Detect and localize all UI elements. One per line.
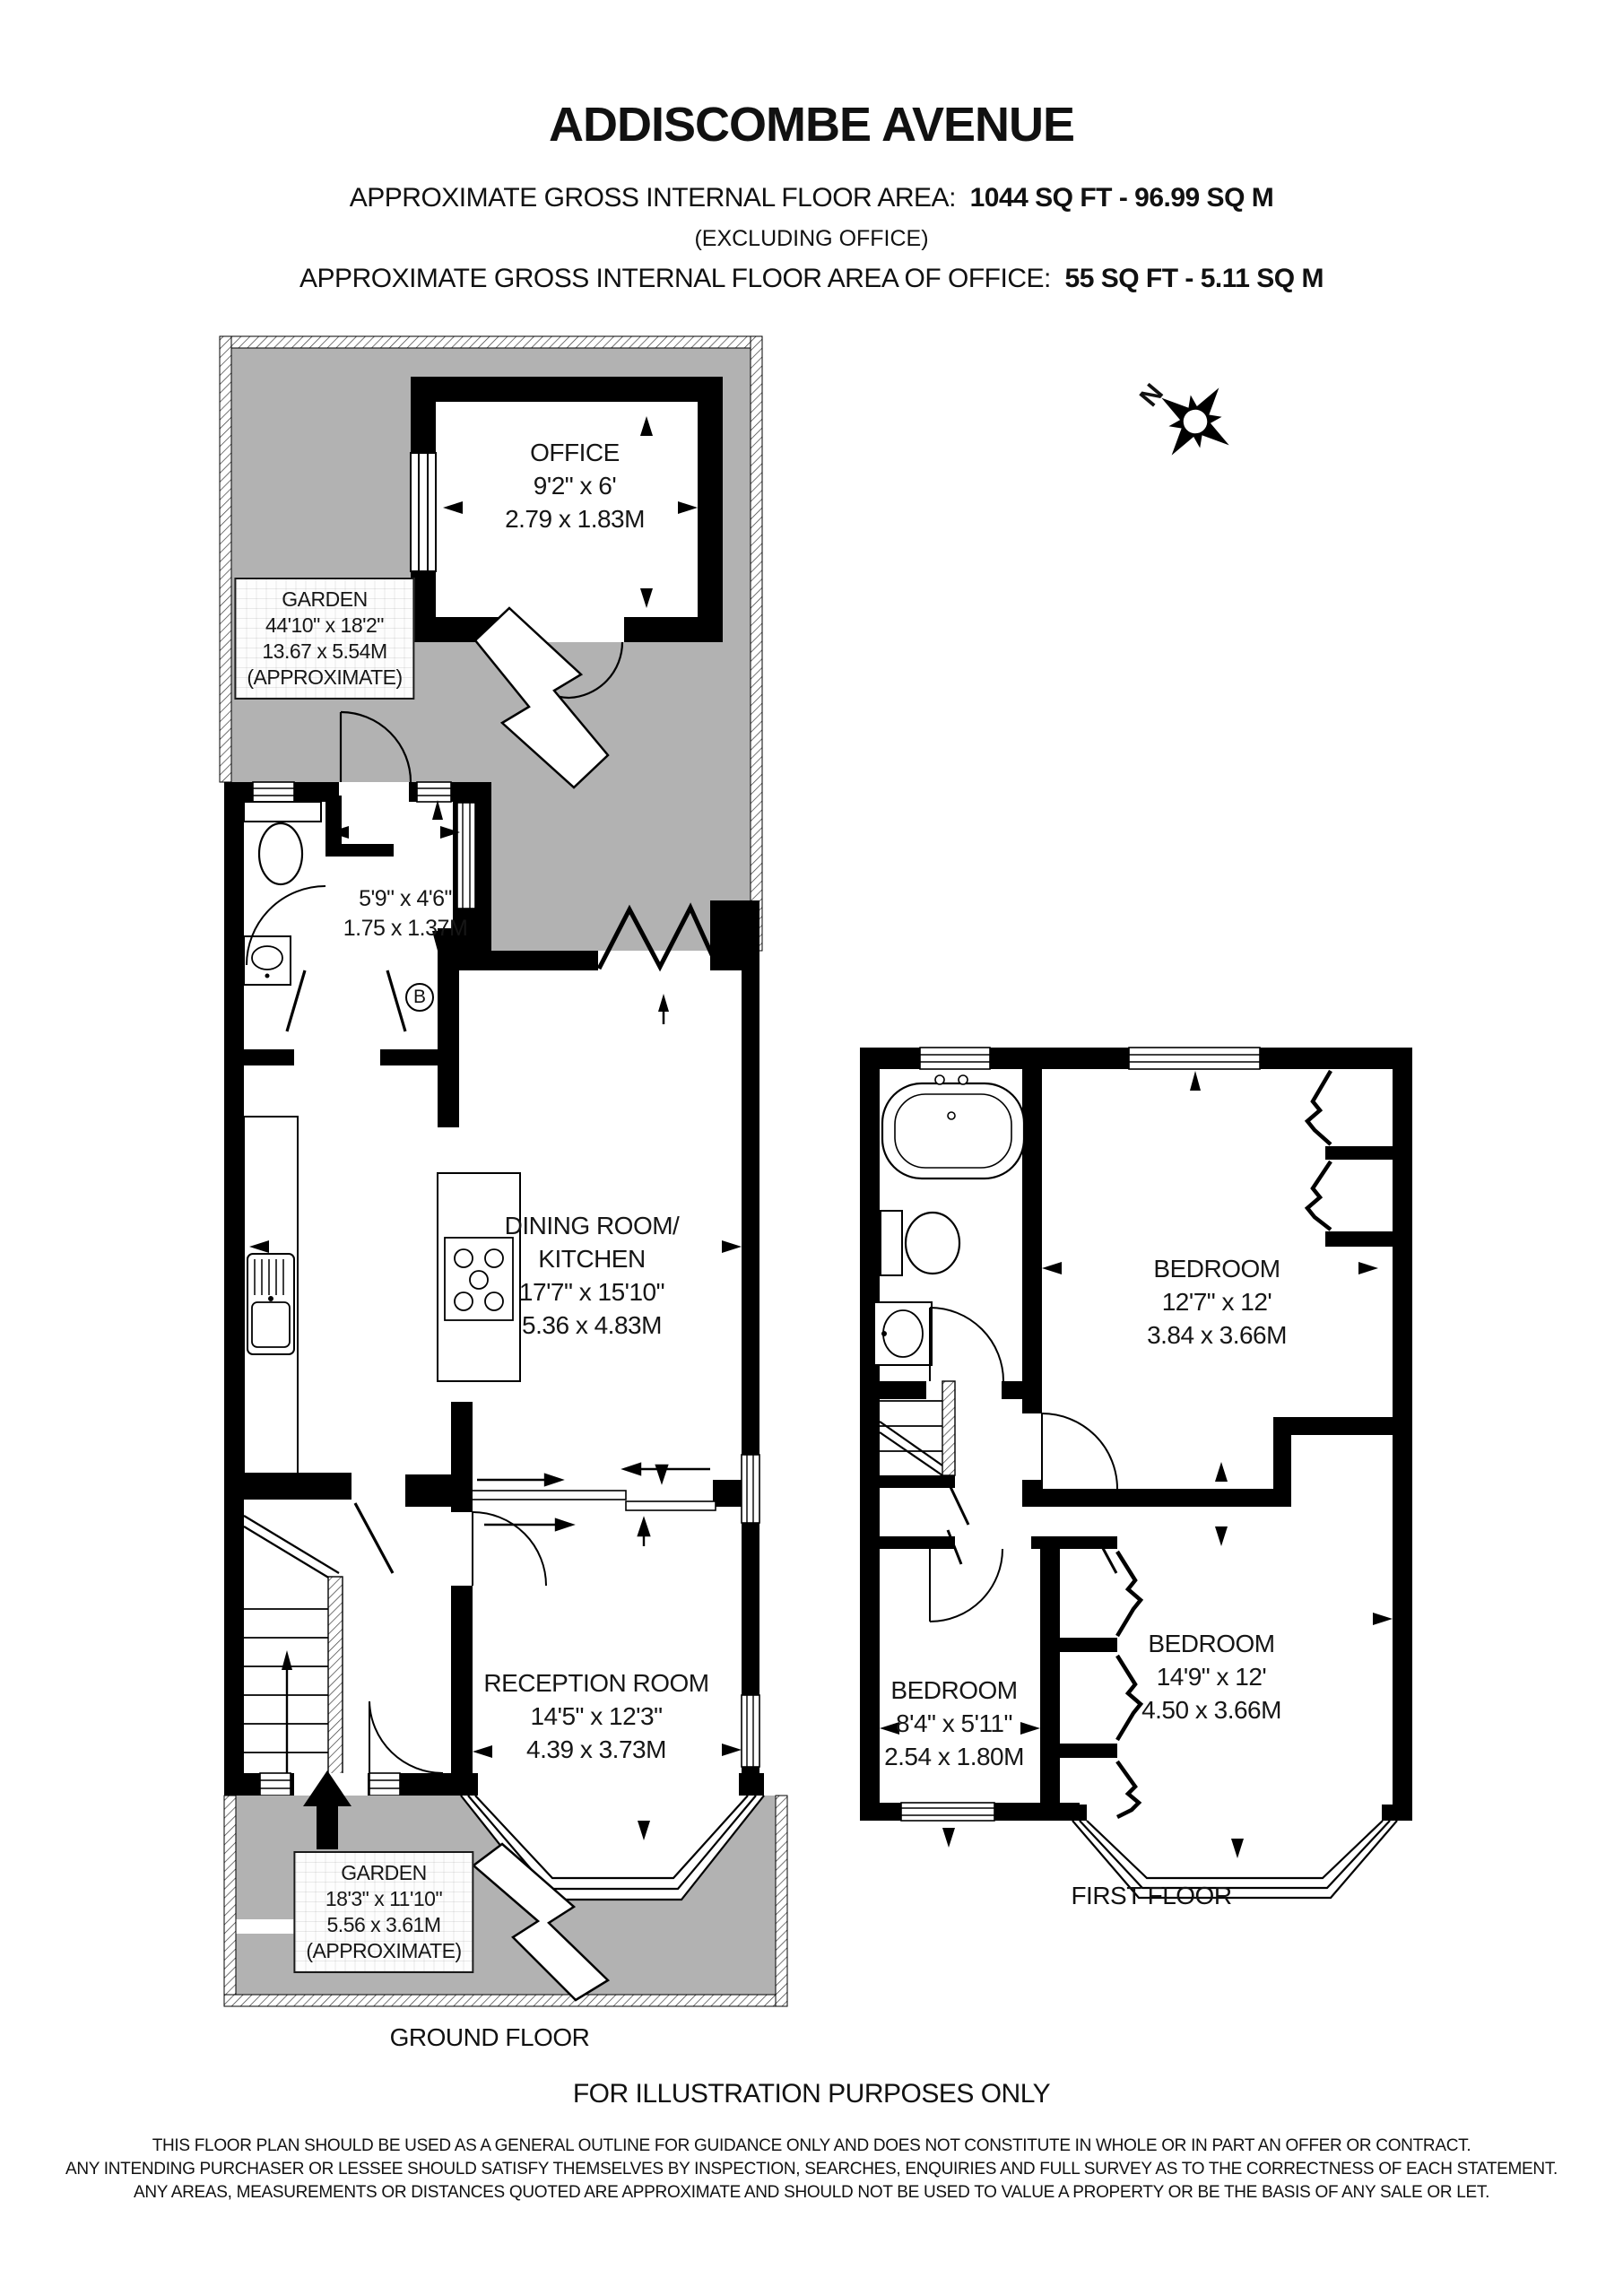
lobby-label: 5'9" x 4'6" 1.75 x 1.37M	[343, 884, 468, 944]
wc-sink-icon	[244, 936, 291, 985]
illustration-note: FOR ILLUSTRATION PURPOSES ONLY	[573, 2079, 1050, 2109]
office-area-line: APPROXIMATE GROSS INTERNAL FLOOR AREA OF…	[299, 264, 1324, 294]
office-area-value: 55 SQ FT - 5.11 SQ M	[1065, 264, 1324, 293]
front-door-icon	[369, 1701, 443, 1773]
ff-front-left-window	[901, 1803, 994, 1821]
floorplan-drawing	[0, 0, 1623, 2296]
ff-toilet-icon	[881, 1211, 959, 1275]
floorplan-page: ADDISCOMBE AVENUE APPROXIMATE GROSS INTE…	[0, 0, 1623, 2296]
wardrobe-front-icon	[1060, 1536, 1141, 1817]
stair-door-icon	[355, 1503, 393, 1573]
kitchen-sink-icon	[247, 1254, 294, 1354]
bedroom-rear-door-icon	[1042, 1413, 1117, 1489]
bedroom-rear-label: BEDROOM 12'7" x 12' 3.84 x 3.66M	[1147, 1252, 1287, 1352]
bathroom-door-icon	[930, 1308, 1003, 1381]
disclaimer-line-1: THIS FLOOR PLAN SHOULD BE USED AS A GENE…	[152, 2136, 1471, 2156]
rear-windows	[253, 782, 451, 802]
disclaimer-line-2: ANY INTENDING PURCHASER OR LESSEE SHOULD…	[65, 2160, 1558, 2179]
page-title: ADDISCOMBE AVENUE	[549, 97, 1074, 152]
wardrobe-rear-icon	[1307, 1071, 1393, 1247]
toilet-icon	[259, 823, 302, 884]
bedroom-small-label: BEDROOM 8'4" x 5'11" 2.54 x 1.80M	[884, 1674, 1024, 1773]
bedroom-small-door-icon	[930, 1549, 1002, 1622]
ground-floor-label: GROUND FLOOR	[390, 2023, 590, 2052]
rear-garden-label: GARDEN 44'10" x 18'2" 13.67 x 5.54M (APP…	[234, 578, 414, 700]
ff-sink-icon	[874, 1302, 932, 1365]
bathroom	[874, 1075, 1024, 1381]
first-floor-label: FIRST FLOOR	[1071, 1882, 1231, 1910]
hall-wall	[224, 1473, 352, 1500]
reception-label: RECEPTION ROOM 14'5" x 12'3" 4.39 x 3.73…	[483, 1666, 708, 1766]
disclaimer-line-3: ANY AREAS, MEASUREMENTS OR DISTANCES QUO…	[134, 2183, 1489, 2203]
office-label: OFFICE 9'2" x 6' 2.79 x 1.83M	[505, 436, 645, 535]
gross-area-value: 1044 SQ FT - 96.99 SQ M	[970, 183, 1274, 213]
bedroom-front-label: BEDROOM 14'9" x 12' 4.50 x 3.66M	[1141, 1627, 1281, 1726]
gross-area-label: APPROXIMATE GROSS INTERNAL FLOOR AREA:	[350, 183, 956, 213]
compass-icon	[1138, 364, 1253, 479]
front-garden-label: GARDEN 18'3" x 11'10" 5.56 x 3.61M (APPR…	[293, 1851, 473, 1973]
bath-icon	[882, 1075, 1024, 1178]
gross-area-line: APPROXIMATE GROSS INTERNAL FLOOR AREA: 1…	[350, 183, 1273, 213]
kitchen-counter	[244, 1117, 298, 1489]
staircase-ground-icon	[244, 1516, 343, 1799]
excluding-office-note: (EXCLUDING OFFICE)	[694, 226, 928, 252]
office-area-label: APPROXIMATE GROSS INTERNAL FLOOR AREA OF…	[299, 264, 1051, 293]
patio-door-arrow	[658, 994, 669, 1024]
dining-kitchen-label: DINING ROOM/ KITCHEN 17'7" x 15'10" 5.36…	[505, 1209, 680, 1342]
boiler-label: B	[413, 987, 426, 1008]
